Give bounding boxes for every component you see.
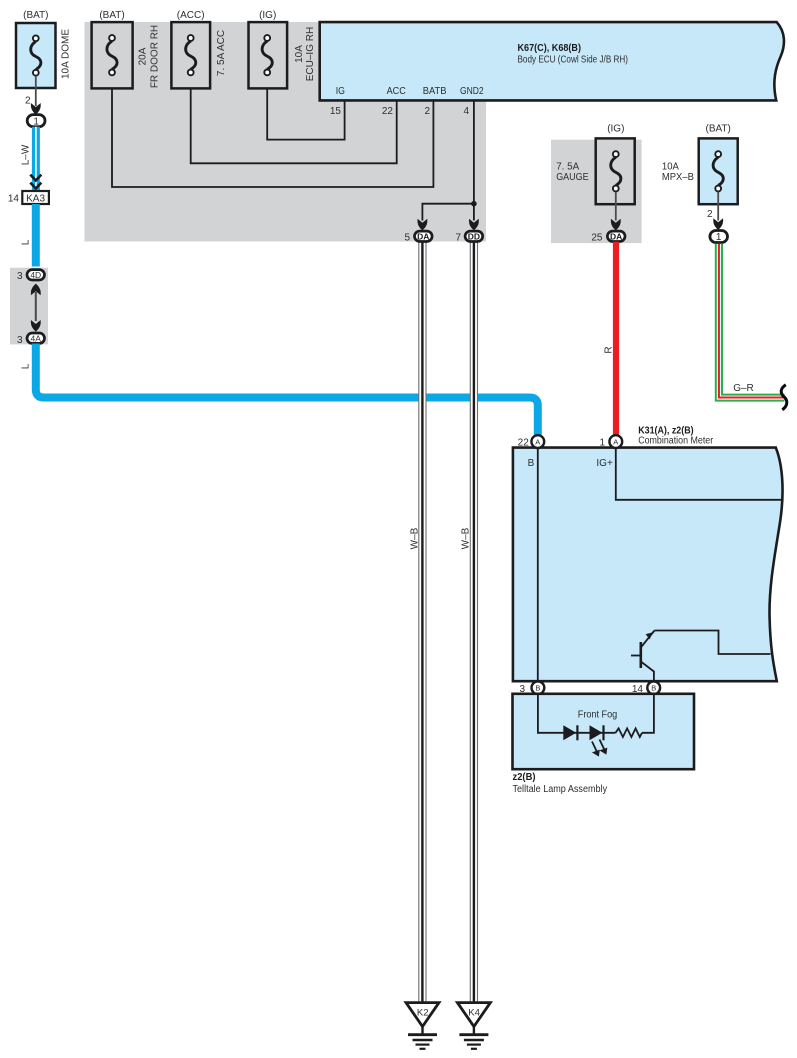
svg-text:Telltale Lamp Assembly: Telltale Lamp Assembly — [513, 784, 608, 795]
svg-text:1: 1 — [716, 232, 722, 243]
svg-text:KA3: KA3 — [26, 194, 45, 205]
svg-text:W–B: W–B — [410, 527, 421, 549]
svg-text:2: 2 — [424, 106, 430, 117]
svg-text:(BAT): (BAT) — [706, 124, 731, 135]
svg-text:25: 25 — [591, 232, 603, 243]
svg-text:W–B: W–B — [461, 527, 472, 549]
svg-text:GAUGE: GAUGE — [556, 172, 589, 183]
svg-text:BATB: BATB — [423, 86, 447, 97]
svg-text:14: 14 — [8, 193, 20, 204]
svg-text:B: B — [535, 684, 540, 693]
svg-text:10A: 10A — [294, 45, 305, 63]
svg-text:R: R — [604, 346, 615, 353]
svg-text:20A: 20A — [138, 47, 149, 65]
svg-text:7: 7 — [455, 232, 461, 243]
svg-text:3: 3 — [17, 335, 23, 346]
svg-text:Combination Meter: Combination Meter — [638, 436, 714, 447]
svg-text:IG: IG — [336, 86, 345, 97]
svg-text:7. 5A ACC: 7. 5A ACC — [216, 30, 227, 76]
svg-text:A: A — [535, 437, 540, 446]
svg-text:ACC: ACC — [387, 86, 406, 97]
svg-text:B: B — [528, 458, 535, 469]
svg-text:(BAT): (BAT) — [23, 10, 48, 21]
svg-text:FR DOOR RH: FR DOOR RH — [150, 25, 161, 88]
svg-text:K2: K2 — [417, 1007, 429, 1018]
svg-text:10A DOME: 10A DOME — [61, 29, 72, 79]
svg-text:L–W: L–W — [21, 144, 32, 165]
svg-text:22: 22 — [382, 106, 394, 117]
svg-text:4D: 4D — [30, 270, 41, 280]
svg-text:DD: DD — [468, 232, 480, 242]
svg-text:K4: K4 — [468, 1007, 480, 1018]
svg-text:z2(B): z2(B) — [513, 772, 536, 783]
svg-text:ECU–IG RH: ECU–IG RH — [305, 27, 316, 81]
svg-text:4: 4 — [463, 106, 469, 117]
svg-text:L: L — [21, 363, 32, 369]
svg-text:3: 3 — [17, 271, 23, 282]
svg-text:5: 5 — [404, 232, 410, 243]
svg-text:IG+: IG+ — [596, 458, 613, 469]
svg-text:B: B — [651, 684, 656, 693]
svg-text:2: 2 — [707, 209, 713, 220]
svg-text:7. 5A: 7. 5A — [556, 162, 579, 173]
svg-text:1: 1 — [599, 438, 605, 449]
svg-text:(IG): (IG) — [607, 124, 624, 135]
svg-text:Front Fog: Front Fog — [578, 709, 618, 720]
svg-text:G–R: G–R — [733, 383, 754, 394]
svg-text:DA: DA — [417, 232, 429, 242]
svg-text:(ACC): (ACC) — [177, 10, 205, 21]
svg-text:22: 22 — [518, 438, 530, 449]
svg-text:(BAT): (BAT) — [99, 10, 124, 21]
svg-text:K67(C), K68(B): K67(C), K68(B) — [518, 43, 582, 54]
svg-text:(IG): (IG) — [259, 10, 276, 21]
svg-text:GND2: GND2 — [460, 86, 484, 97]
svg-text:10A: 10A — [662, 162, 679, 173]
svg-text:4A: 4A — [31, 333, 42, 343]
svg-text:2: 2 — [25, 96, 31, 107]
svg-text:1: 1 — [33, 116, 39, 127]
svg-text:DA: DA — [610, 232, 622, 242]
svg-text:MPX–B: MPX–B — [662, 172, 694, 183]
svg-text:A: A — [613, 437, 618, 446]
svg-text:Body ECU (Cowl Side J/B RH): Body ECU (Cowl Side J/B RH) — [518, 54, 629, 65]
svg-text:15: 15 — [330, 106, 342, 117]
svg-text:L: L — [21, 239, 32, 245]
